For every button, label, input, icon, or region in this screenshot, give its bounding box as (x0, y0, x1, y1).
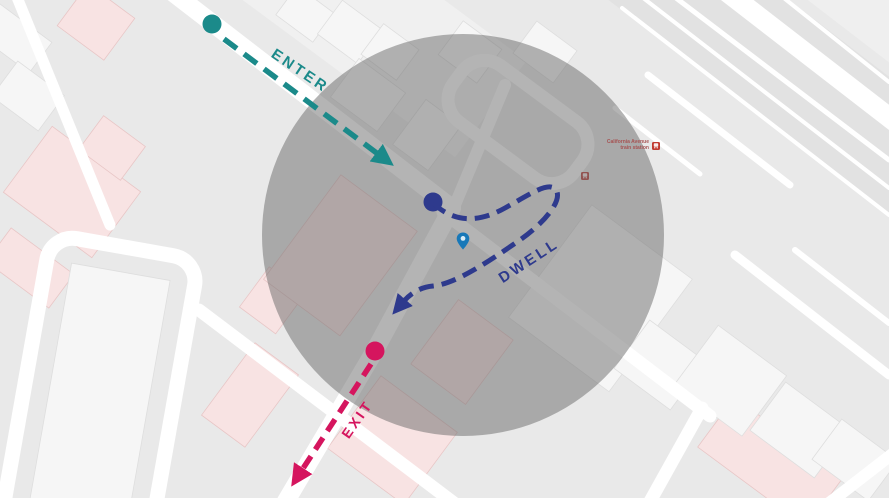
map-canvas (0, 0, 889, 498)
exit-dot (366, 342, 385, 361)
station-label-line2: train station (601, 145, 649, 151)
station-label: California Avenue train station (601, 139, 649, 151)
geofence-map-illustration: ENTER DWELL EXIT California Avenue train… (0, 0, 889, 498)
train-station-icon (652, 142, 660, 150)
enter-dot (203, 15, 222, 34)
